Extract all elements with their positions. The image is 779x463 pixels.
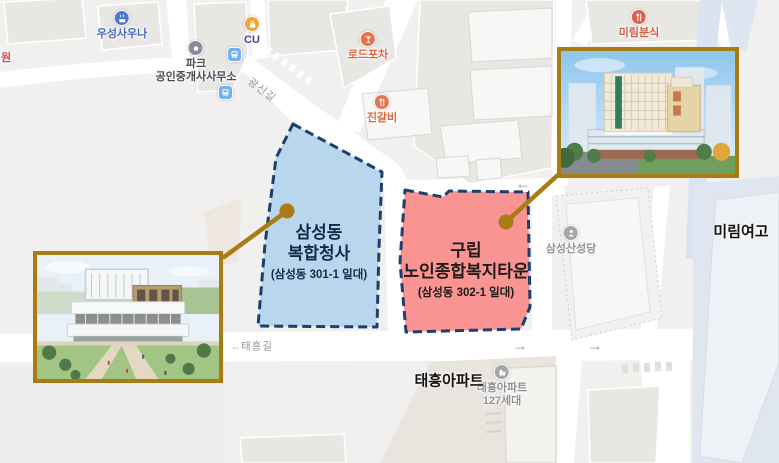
shopping-bag-icon xyxy=(244,16,260,32)
poi-label: 태흥아파트 xyxy=(477,381,528,395)
poi-label: 로드포차 xyxy=(348,48,388,62)
site-label-blue: 삼성동 복합청사 (삼성동 301-1 일대) xyxy=(271,222,367,282)
site-red-sub: (삼성동 302-1 일대) xyxy=(403,286,528,300)
site-blue-sub: (삼성동 301-1 일대) xyxy=(271,268,367,282)
poi-mirim-bunsik[interactable]: 미림분식 xyxy=(619,9,659,40)
inset-render-samseongdong-complex xyxy=(33,251,223,383)
poi-label: 파크 xyxy=(186,57,206,71)
sauna-icon xyxy=(114,10,130,26)
area-label-taeheung-apartment: 태흥아파트 xyxy=(414,370,483,391)
poi-label: 원 xyxy=(1,51,11,65)
road-label-taeheung: ←태흥길 xyxy=(231,339,273,354)
drink-icon xyxy=(360,31,376,47)
poi-label: 미림분식 xyxy=(619,26,659,40)
site-blue-line1: 삼성동 xyxy=(271,222,367,243)
poi-samseongsan-cathedral[interactable]: 삼성산성당 xyxy=(546,225,597,256)
rendering-complex-building xyxy=(37,255,219,379)
poi-label: 삼성산성당 xyxy=(546,242,597,256)
inset-render-welfare-town xyxy=(557,47,739,178)
fork-knife-icon xyxy=(374,94,390,110)
site-blue-line2: 복합청사 xyxy=(271,243,367,264)
poi-jingalbi[interactable]: 진갈비 xyxy=(367,94,397,125)
poi-road-pocha[interactable]: 로드포차 xyxy=(348,31,388,62)
fork-knife-icon xyxy=(631,9,647,25)
oneway-left-arrow-icon: ← xyxy=(516,177,531,192)
bus-stop-icon[interactable] xyxy=(218,85,233,100)
poi-label-2: 127세대 xyxy=(483,394,522,408)
poi-label: CU xyxy=(244,33,260,47)
rendering-welfare-building xyxy=(561,51,735,174)
site-red-line2: 노인종합복지타운 xyxy=(403,261,528,282)
apartment-icon xyxy=(494,364,510,380)
area-label-mirim-girls-high: 미림여고 xyxy=(713,221,768,242)
poi-taeheung-apartment[interactable]: 태흥아파트 127세대 xyxy=(477,364,528,409)
poi-label: 우성사우나 xyxy=(97,27,148,41)
map-canvas[interactable]: 우성사우나 파크 공인중개사사무소 CU 로드포차 진갈비 미림분식 xyxy=(0,0,779,463)
site-red-line1: 구립 xyxy=(403,240,528,261)
poi-partial-won: 원 xyxy=(1,50,11,65)
site-label-red: 구립 노인종합복지타운 (삼성동 302-1 일대) xyxy=(403,240,528,300)
poi-label-2: 공인중개사사무소 xyxy=(156,70,237,84)
bus-stop-icon[interactable] xyxy=(227,47,242,62)
poi-label: 진갈비 xyxy=(367,111,397,125)
oneway-right-arrow-icon: → xyxy=(588,339,603,354)
church-person-icon xyxy=(563,225,579,241)
oneway-right-arrow-icon: → xyxy=(513,339,528,354)
left-arrow-icon: ← xyxy=(231,342,241,352)
poi-park-realestate[interactable]: 파크 공인중개사사무소 xyxy=(156,40,237,85)
poi-cu-store[interactable]: CU xyxy=(244,16,260,47)
poi-wooseong-sauna[interactable]: 우성사우나 xyxy=(97,10,148,41)
realestate-icon xyxy=(188,40,204,56)
